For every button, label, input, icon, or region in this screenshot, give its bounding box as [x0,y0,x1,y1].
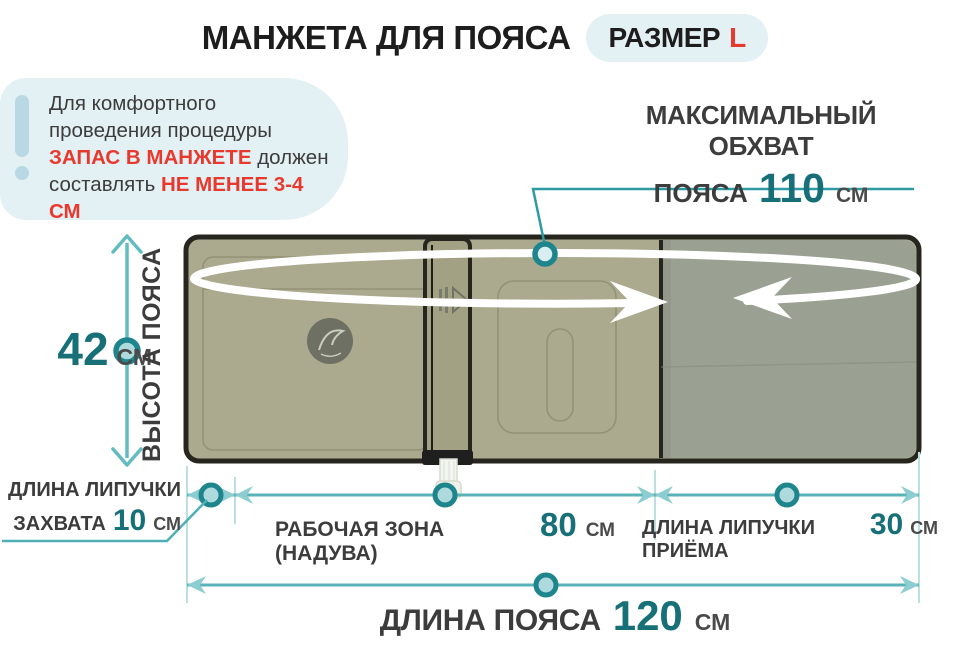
working-zone-value: 80 [540,506,577,544]
note-callout: Для комфортного проведения процедуры ЗАП… [0,78,348,220]
grip-velcro-line2: ЗАХВАТА [13,513,106,536]
max-girth-value: 110 [759,165,825,212]
working-zone-label: РАБОЧАЯ ЗОНА (НАДУВА) 80 СМ [275,506,615,566]
brand-stamp [307,318,353,364]
working-zone-dot [435,485,455,505]
working-zone-text: РАБОЧАЯ ЗОНА (НАДУВА) [275,518,531,566]
receiving-velcro-dot [777,485,797,505]
max-girth-unit: СМ [836,184,868,208]
belt-height-value: 42 [57,322,108,376]
max-girth-line1: МАКСИМАЛЬНЫЙ ОБХВАТ [600,100,922,162]
max-girth-anchor-dot [535,244,555,264]
belt-length-unit: СМ [695,609,730,636]
receiving-velcro-unit: СМ [910,518,938,539]
max-girth-line2: ПОЯСА [654,178,748,209]
note-part1: Для комфортного проведения процедуры [49,92,272,142]
working-zone-unit: СМ [586,520,615,542]
note-text: Для комфортного проведения процедуры ЗАП… [49,90,331,225]
cuff-illustration [186,237,919,498]
receiving-velcro-value: 30 [870,508,903,542]
note-highlight1: ЗАПАС В МАНЖЕТЕ [49,146,252,169]
belt-length-label: ДЛИНА ПОЯСА 120 СМ [345,592,765,640]
zipper-flap [422,239,473,465]
size-badge-value: L [729,22,746,54]
receiving-velcro-text: ДЛИНА ЛИПУЧКИ ПРИЁМА [642,517,863,563]
header: МАНЖЕТА ДЛЯ ПОЯСА РАЗМЕР L [0,14,970,62]
size-badge-label: РАЗМЕР [608,22,720,54]
velcro-receiving-panel [661,240,916,458]
page-title: МАНЖЕТА ДЛЯ ПОЯСА [202,19,571,57]
belt-length-value: 120 [613,592,683,640]
belt-height-label: ВЫСОТА ПОЯСА [138,240,167,462]
exclamation-icon [15,95,29,180]
grip-velcro-value: 10 [113,504,146,538]
belt-length-text: ДЛИНА ПОЯСА [380,604,601,638]
receiving-velcro-label: ДЛИНА ЛИПУЧКИ ПРИЁМА 30 СМ [642,508,938,563]
grip-velcro-unit: СМ [153,514,181,535]
max-girth-label: МАКСИМАЛЬНЫЙ ОБХВАТ ПОЯСА 110 СМ [600,100,922,212]
exclamation-dot [15,166,29,180]
belt-height-value-group: 42 СМ [34,322,152,376]
grip-velcro-label: ДЛИНА ЛИПУЧКИ ЗАХВАТА 10 СМ [0,479,181,538]
infographic-canvas: МАНЖЕТА ДЛЯ ПОЯСА РАЗМЕР L Для комфортно… [0,0,970,647]
exclamation-bar [15,95,29,157]
grip-velcro-line1: ДЛИНА ЛИПУЧКИ [0,479,181,502]
size-badge: РАЗМЕР L [586,14,768,62]
